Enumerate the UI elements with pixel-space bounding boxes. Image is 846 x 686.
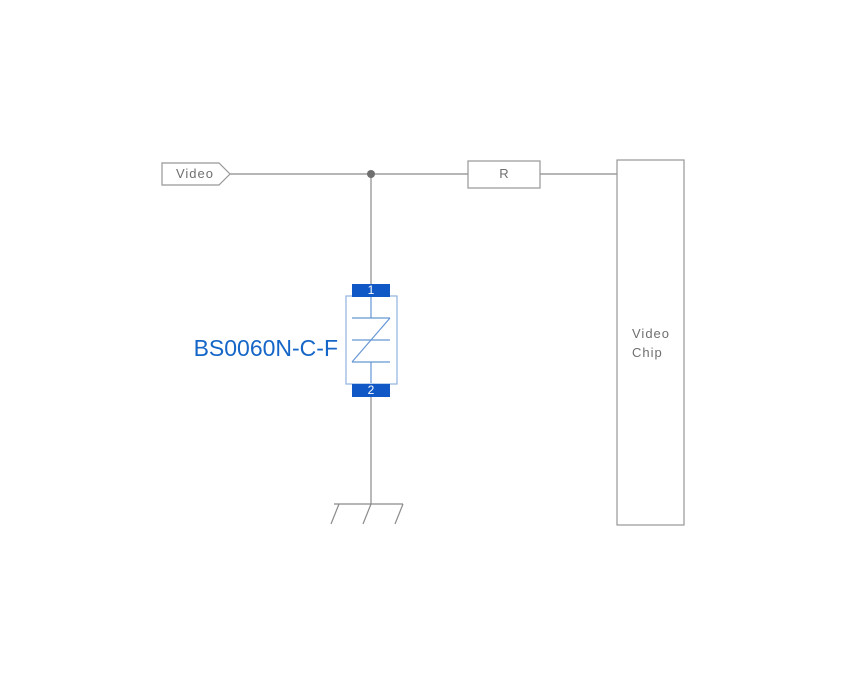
net-flag-video: Video (162, 163, 230, 185)
net-flag-label: Video (176, 166, 214, 181)
video-chip-label-line1: Video (632, 326, 670, 341)
junction-dot (367, 170, 375, 178)
video-chip-label-line2: Chip (632, 345, 663, 360)
ground-hash-right (395, 504, 403, 524)
resistor-label: R (499, 166, 508, 181)
video-chip-body (617, 160, 684, 525)
ground-hash-middle (363, 504, 371, 524)
video-chip: Video Chip (617, 160, 684, 525)
tvs-diode-component[interactable]: 1 2 (346, 283, 397, 397)
resistor: R (468, 161, 540, 188)
schematic-canvas: Video R Video Chip 1 2 (0, 0, 846, 686)
part-number-label[interactable]: BS0060N-C-F (194, 335, 338, 361)
tvs-pin1-label: 1 (368, 283, 375, 297)
tvs-pin2-label: 2 (368, 383, 375, 397)
ground-symbol (331, 504, 403, 524)
schematic-page: Video R Video Chip 1 2 (0, 0, 846, 686)
ground-hash-left (331, 504, 339, 524)
